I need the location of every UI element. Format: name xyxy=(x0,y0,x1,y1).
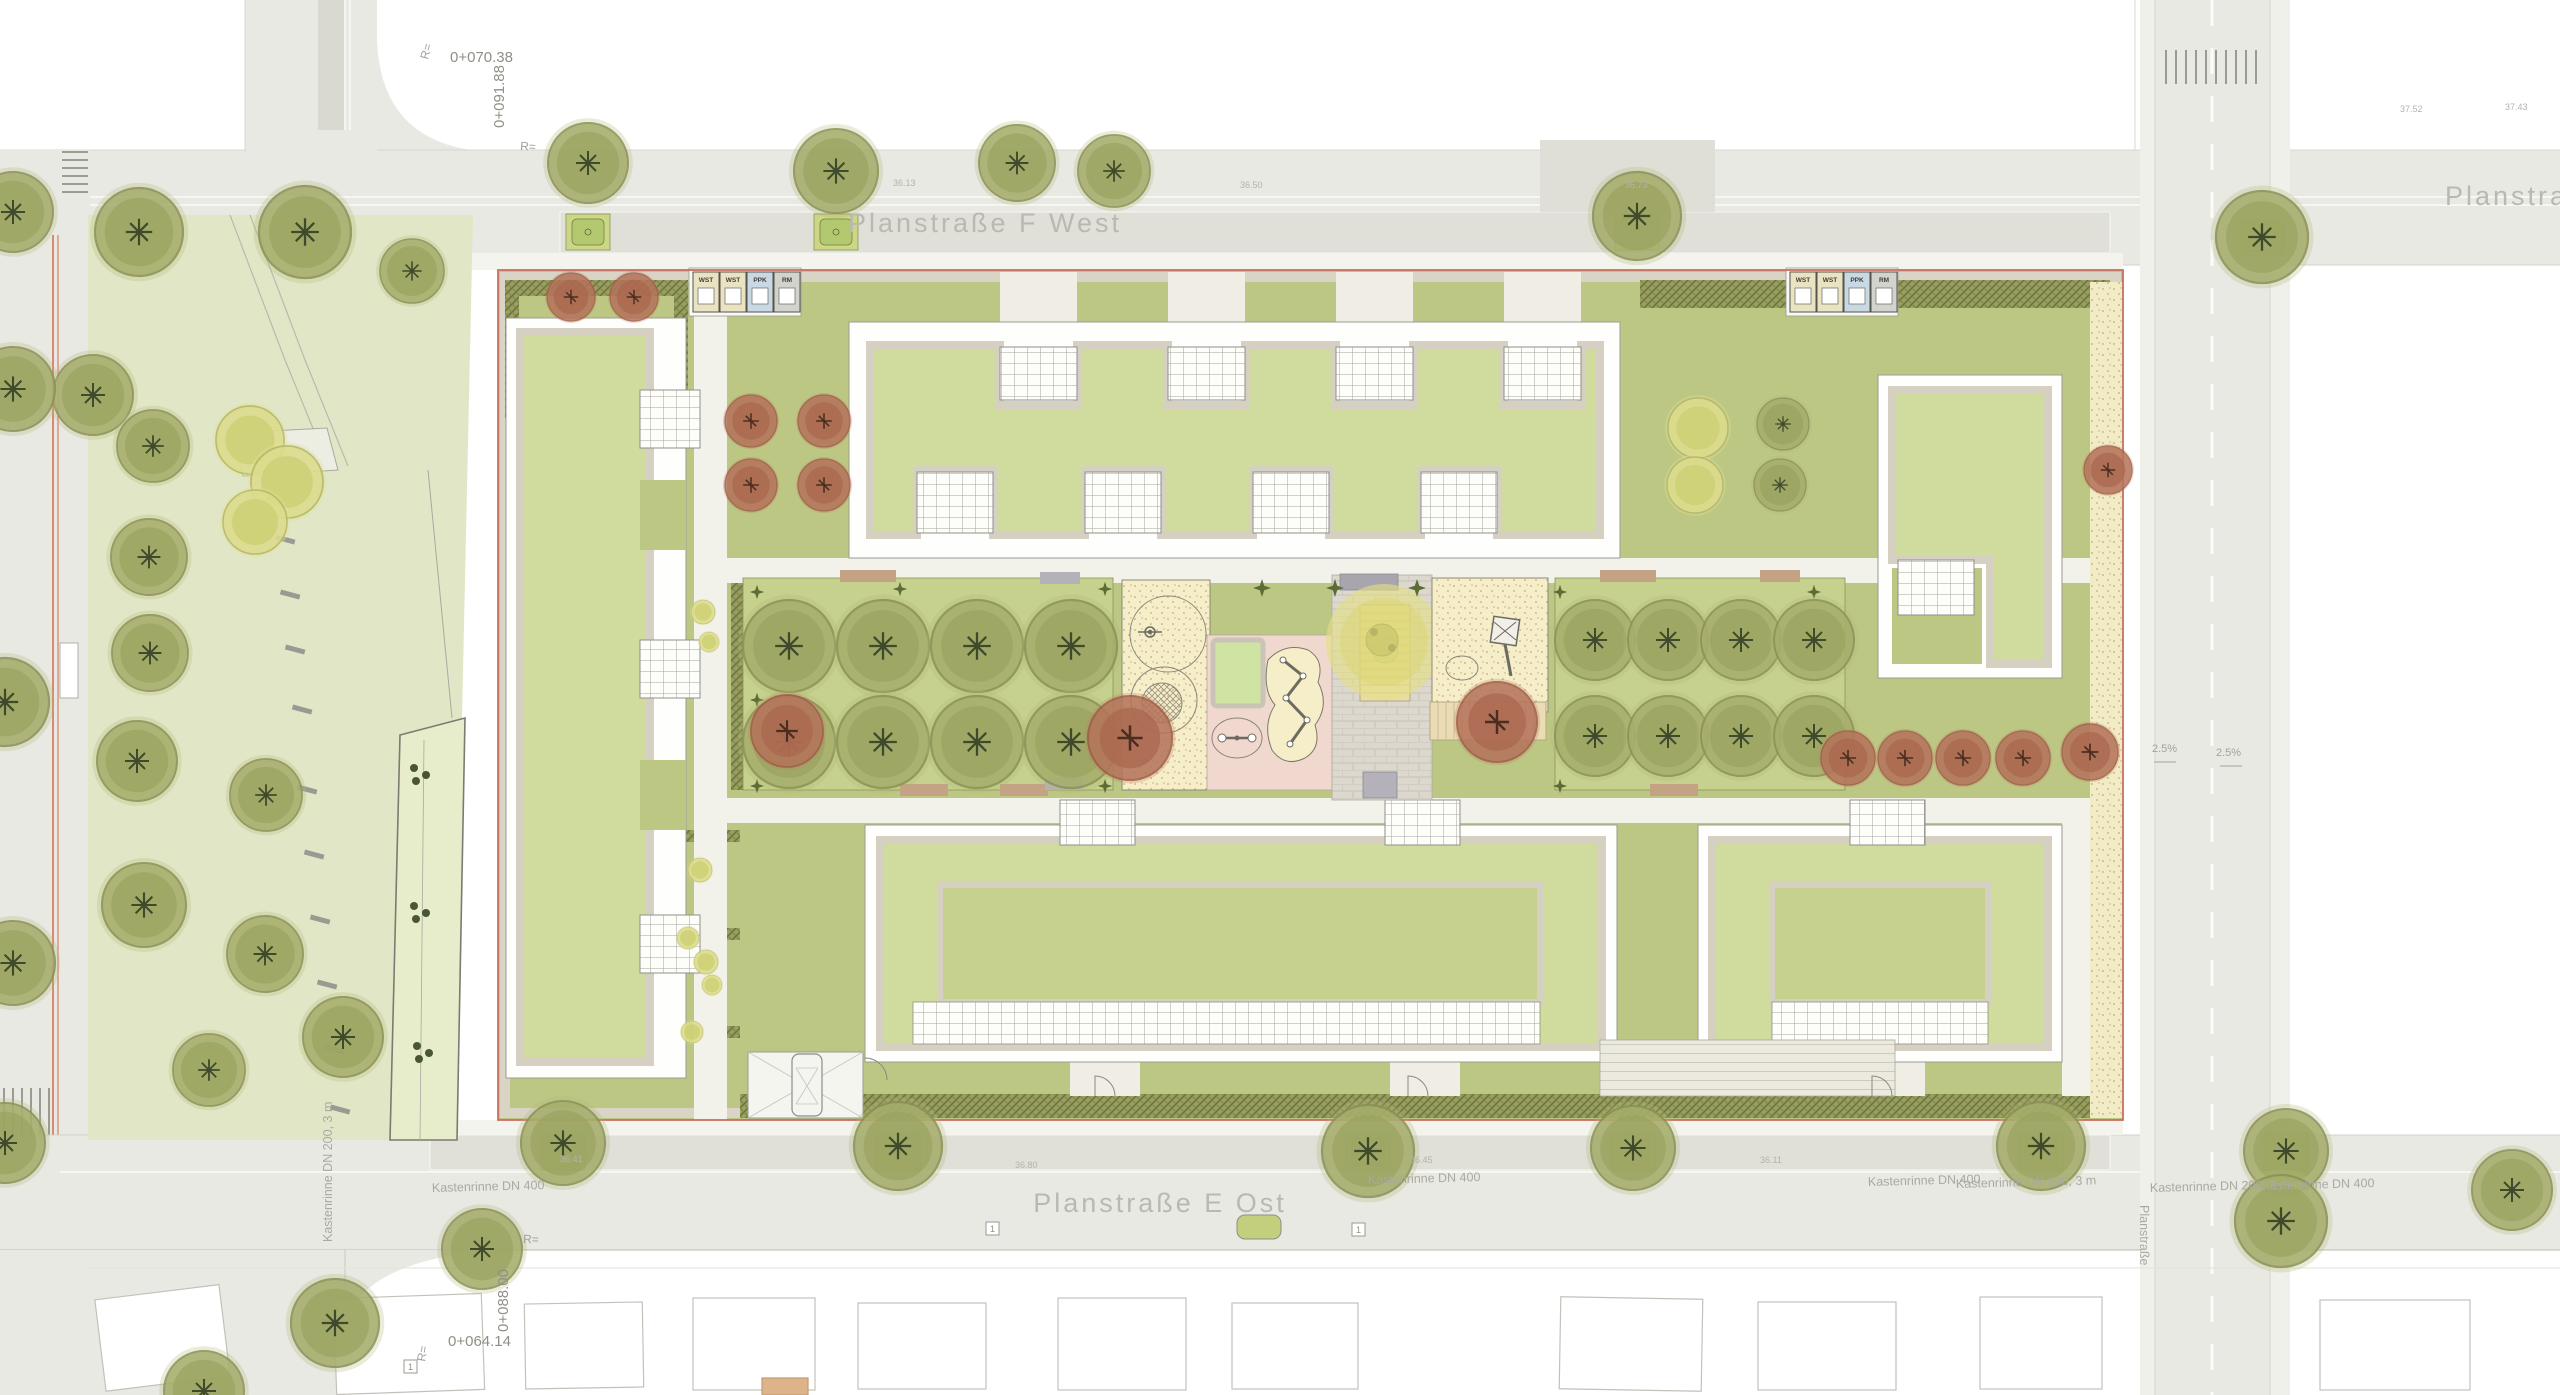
street-northwest xyxy=(245,0,377,152)
plot-building xyxy=(1980,1297,2102,1389)
tree xyxy=(253,180,356,283)
shrub xyxy=(698,631,720,653)
tree xyxy=(1074,131,1155,212)
tree-red xyxy=(1819,729,1877,787)
tree xyxy=(97,858,191,952)
tree xyxy=(974,120,1059,205)
elevation-label: 36.45 xyxy=(1410,1155,1433,1165)
tree xyxy=(298,992,388,1082)
slope-label: 2.5% xyxy=(2152,743,2177,755)
play-lawn xyxy=(1213,640,1263,706)
elevation-label: 37.52 xyxy=(2400,104,2423,114)
parking-strip-south xyxy=(430,1135,2110,1170)
drain-label: Kastenrinne DN 400 xyxy=(1368,1170,1481,1187)
tree xyxy=(2467,1145,2557,1235)
waste-bins-west: WST WST PPK RM xyxy=(689,268,801,316)
building-northeast xyxy=(1878,375,2062,678)
tree xyxy=(113,406,194,487)
tree-red xyxy=(545,271,597,323)
tree xyxy=(2210,185,2313,288)
tree xyxy=(92,716,182,806)
sand-blob xyxy=(1266,648,1323,762)
shrub xyxy=(676,926,700,950)
building-north xyxy=(849,322,1620,558)
elevation-label: 36.41 xyxy=(560,1154,583,1164)
plot-building xyxy=(693,1298,815,1390)
chainage-bottom-vertical: 0+088.00 xyxy=(495,1269,512,1332)
tree xyxy=(169,1030,250,1111)
elevation-label: 36.73 xyxy=(1625,180,1648,190)
tree-red xyxy=(723,393,779,449)
shrub xyxy=(693,949,719,975)
elevation-label: 37.43 xyxy=(2505,102,2528,112)
sidewalk-south xyxy=(430,1120,2123,1135)
tree xyxy=(106,514,191,599)
elevation-label: 36.80 xyxy=(1015,1160,1038,1170)
large-tree-yellow xyxy=(1326,584,1442,700)
tree xyxy=(376,235,448,307)
tree-red xyxy=(723,457,779,513)
tree xyxy=(1586,1101,1680,1195)
drain-label-vertical: Kastenrinne DN 200, 3 m xyxy=(321,1102,335,1242)
plot-building xyxy=(1058,1298,1186,1390)
shrub xyxy=(687,857,713,883)
roof-terrace xyxy=(640,640,700,698)
tree xyxy=(437,1204,527,1294)
chainage-top-vertical: 0+091.88 xyxy=(491,65,508,128)
slope-label: 2.5% xyxy=(2216,747,2241,759)
chainage-bottom: 0+064.14 xyxy=(448,1333,511,1350)
tree-red xyxy=(796,393,852,449)
tree-yellow xyxy=(1665,395,1731,461)
bench-gray xyxy=(1363,772,1397,798)
median-strip xyxy=(318,0,344,130)
bin-label: WST xyxy=(726,277,740,284)
tree xyxy=(107,610,192,695)
plot-building xyxy=(524,1302,643,1389)
drain-label: Kastenrinne DN 400 xyxy=(2262,1176,2375,1193)
plot-building xyxy=(1559,1297,1703,1391)
inner-courtyard xyxy=(1772,885,1988,1002)
roof-terrace xyxy=(1060,800,1135,845)
parking-strip-north xyxy=(560,212,2110,253)
tree xyxy=(226,755,307,836)
site-plan-canvas: WST WST PPK RM WST WST PPK RM xyxy=(0,0,2560,1395)
tree-yellow xyxy=(1664,454,1726,516)
roof-terrace xyxy=(1850,800,1925,845)
tree-red xyxy=(1876,729,1934,787)
building-southeast xyxy=(1698,800,2062,1062)
plot-building xyxy=(1758,1302,1896,1390)
bin-label: PPK xyxy=(1850,277,1864,284)
roof-terrace xyxy=(1898,560,1974,615)
tree-red xyxy=(1454,679,1540,765)
building-west xyxy=(506,318,700,1078)
plot-building xyxy=(2320,1300,2470,1390)
tree xyxy=(1316,1099,1419,1202)
shrub xyxy=(690,599,716,625)
chainage-top: 0+070.38 xyxy=(450,49,513,66)
car xyxy=(792,1054,822,1116)
tree xyxy=(831,690,934,793)
shrub xyxy=(680,1020,704,1044)
tree xyxy=(222,911,307,996)
street-label-north: Planstraße F West xyxy=(848,208,1122,238)
bin-label: WST xyxy=(1823,277,1837,284)
tree-red xyxy=(748,692,826,770)
elevation-label: 36.50 xyxy=(1240,180,1263,190)
tree xyxy=(543,118,633,208)
bin-label: RM xyxy=(782,277,792,284)
tree-red xyxy=(1994,729,2052,787)
street-label-east: Planstraße xyxy=(2445,181,2560,211)
meadow-strip xyxy=(390,718,465,1140)
speed-table xyxy=(1237,1215,1281,1239)
tree-red xyxy=(796,457,852,513)
inner-courtyard xyxy=(940,885,1540,1002)
radius-label: R= xyxy=(523,1232,539,1247)
tree xyxy=(1769,595,1859,685)
tree xyxy=(1019,594,1122,697)
tree-red xyxy=(2082,444,2134,496)
bin-label: RM xyxy=(1879,277,1889,284)
radius-label: R= xyxy=(520,139,536,154)
site-plan[interactable]: WST WST PPK RM WST WST PPK RM xyxy=(0,0,2560,1395)
tree-yellow xyxy=(220,487,290,557)
drain-label: Kastenrinne DN 400 xyxy=(432,1178,545,1195)
plot-building xyxy=(858,1303,986,1389)
roof-terrace xyxy=(1385,800,1460,845)
elevation-label: 36.13 xyxy=(893,178,916,188)
ref-marker: 1 xyxy=(408,1362,413,1372)
tree-red xyxy=(608,271,660,323)
bin-label: WST xyxy=(1796,277,1810,284)
tree xyxy=(286,1274,385,1373)
building-south xyxy=(865,800,1617,1062)
tree xyxy=(1751,456,1809,514)
garden-beds xyxy=(1600,1040,1895,1096)
tree xyxy=(737,594,840,697)
tree xyxy=(849,1097,948,1196)
tree xyxy=(831,594,934,697)
roof-terrace-band xyxy=(913,1002,1540,1044)
bin-label: PPK xyxy=(753,277,767,284)
tree xyxy=(90,183,189,282)
plot-building xyxy=(1232,1303,1358,1389)
roof-terrace xyxy=(640,390,700,448)
ref-marker: 1 xyxy=(1356,1225,1361,1235)
sidewalk-north xyxy=(430,253,2123,270)
tree xyxy=(925,690,1028,793)
tree-red xyxy=(1085,693,1176,784)
waste-bins-east: WST WST PPK RM xyxy=(1786,268,1898,316)
tree xyxy=(789,124,883,218)
street-label-east-vertical: Planstraße xyxy=(2137,1205,2151,1265)
bin-label: WST xyxy=(699,277,713,284)
street-label-south: Planstraße E Ost xyxy=(1033,1188,1287,1218)
plot-roof-tan xyxy=(762,1378,808,1395)
elevation-label: 36.11 xyxy=(1760,1155,1782,1165)
tree xyxy=(925,594,1028,697)
tree xyxy=(516,1096,610,1190)
tree-red xyxy=(2060,722,2120,782)
shrub xyxy=(701,974,723,996)
tree-red xyxy=(1934,729,1992,787)
tree xyxy=(1754,395,1812,453)
ref-marker: 1 xyxy=(990,1224,995,1234)
park-structure xyxy=(60,643,78,698)
